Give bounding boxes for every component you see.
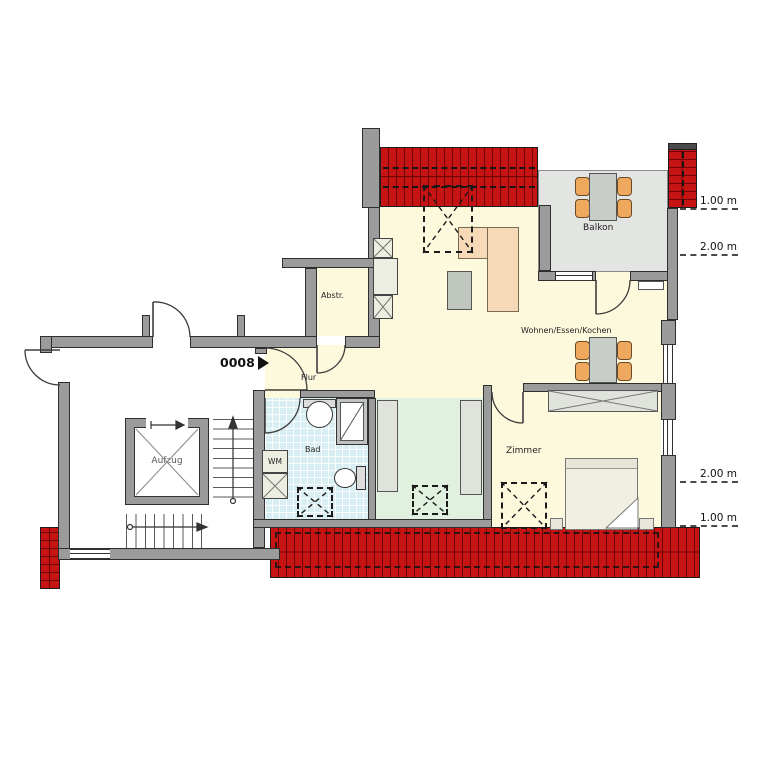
roof-strip-left [40,527,60,589]
wall-storage-top [282,258,380,268]
label-living: Wohnen/Essen/Kochen [521,326,611,335]
label-storage: Abstr. [321,291,344,300]
dim-line-bottom-2 [680,525,738,527]
elevator-door-gap [146,417,188,428]
dim-line-top-1 [680,208,738,210]
stair-flight-up [213,419,253,505]
wall-right-2 [661,320,676,345]
window-stairwell [70,549,110,559]
nightstand-left [550,518,563,530]
elevator-label: Aufzug [134,456,200,466]
skylight-bath [297,487,333,517]
wall-bottom-under-bath [253,519,492,528]
wall-storage-left [305,268,317,337]
window-balcony [556,271,592,281]
label-bath: Bad [305,445,320,454]
dim-bottom-2: 1.00 m [700,512,737,524]
roof-strip-top-right [668,149,697,208]
door-arc-stair-top [153,302,190,337]
balcony-chair-4 [617,199,632,218]
dining-chair-2 [575,362,590,381]
washer-label: WM [268,457,282,466]
wall-stub-up-2 [237,315,245,337]
window-living-right [663,345,673,383]
wall-stair-left [58,382,70,552]
washer-x-box [262,473,288,499]
dining-chair-1 [575,341,590,360]
roof-strip-bottom [270,527,700,578]
wall-balcony-right-cap [668,143,697,150]
unit-number: 0008 [220,355,269,370]
balcony-chair-2 [575,199,590,218]
dim-top-1: 1.00 m [700,195,737,207]
wardrobe-left [377,400,398,492]
wall-stub-jamb [255,348,267,354]
bedroom-closet [548,390,658,412]
dining-chair-4 [617,362,632,381]
wall-bath-dressing [368,398,376,520]
wall-right-3 [661,383,676,420]
wall-landing-top-1 [40,336,153,348]
skylight-bedroom [501,482,547,529]
bed-headboard [566,459,637,469]
toilet-bowl [334,468,356,488]
nightstand-right [639,518,654,530]
wall-dressing-bedroom [483,385,492,528]
wall-balcony-bottom-2 [592,271,596,281]
floor-plan: Aufzug WM [0,0,757,757]
label-hall: Flur [301,373,316,382]
kitchen-cabinet-top [373,238,393,258]
wall-landing-top-2 [190,336,317,348]
kitchen-cabinet-mid [373,258,398,295]
balcony-chair-3 [617,177,632,196]
sofa-right [487,227,519,312]
dim-line-bottom-1 [680,481,738,483]
wall-balcony-left [539,205,551,271]
skylight-dressing [412,485,448,515]
wall-right-4 [661,455,676,528]
wall-cap-left [40,336,52,353]
dim-bottom-1: 2.00 m [700,468,737,480]
side-table [447,271,472,310]
dining-chair-3 [617,341,632,360]
toilet-tank [356,466,366,490]
kitchen-cabinet-bottom [373,295,393,319]
sink [306,401,333,428]
window-sill-niche [638,281,664,290]
door-arc-stair-left [25,350,60,385]
bed [565,458,638,530]
balcony-table [589,173,617,221]
unit-number-text: 0008 [220,355,255,370]
wall-landing-top-3 [345,336,380,348]
dining-table [589,337,617,383]
wall-balcony-bottom-1 [538,271,556,281]
wardrobe-right [460,400,482,495]
stair-flight-lower [126,514,210,548]
balcony-chair-1 [575,177,590,196]
label-balcony: Balkon [583,223,613,233]
window-bedroom-right [663,420,673,455]
shower [336,398,368,445]
storage-floor [317,268,368,336]
entry-arrow-icon [258,356,269,370]
washer-box: WM [262,450,288,473]
wall-right-1 [667,208,678,320]
label-bedroom: Zimmer [506,446,541,456]
wall-stub-up-1 [142,315,150,337]
dim-top-2: 2.00 m [700,241,737,253]
skylight-living [423,185,473,253]
wall-bath-top [300,390,375,398]
shower-tray [340,402,364,441]
dim-line-top-2 [680,254,738,256]
wall-balcony-bottom-3 [630,271,668,281]
wall-chimney [362,128,380,208]
